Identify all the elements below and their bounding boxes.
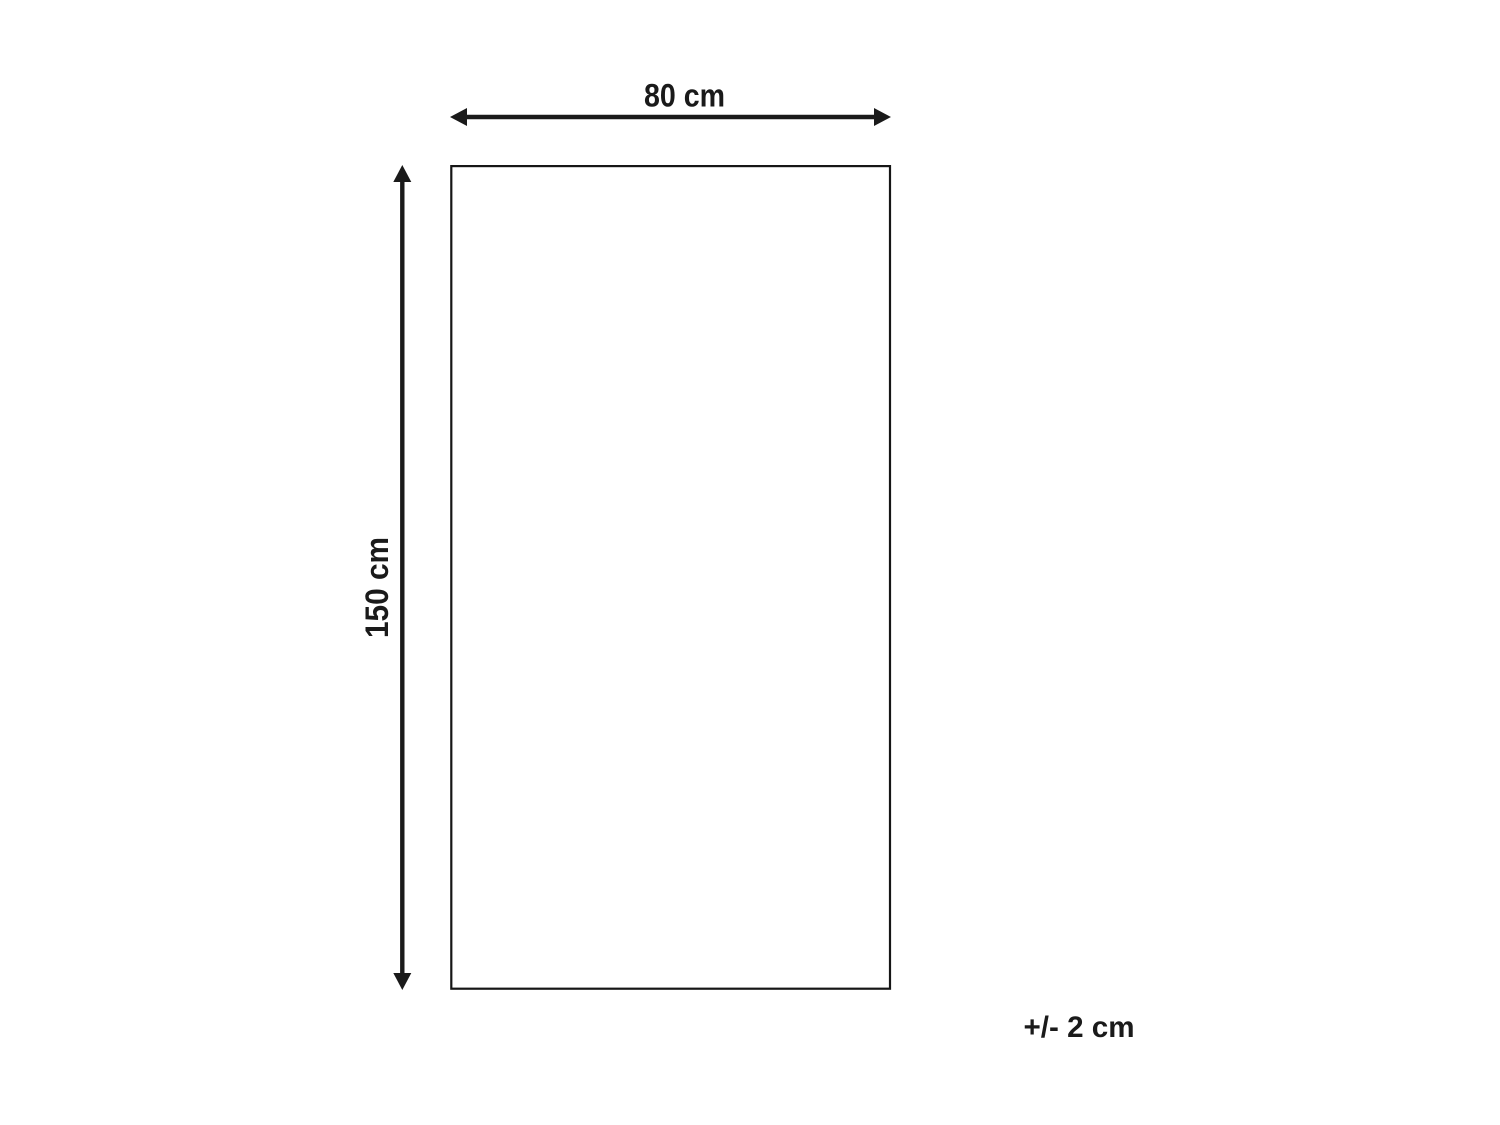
svg-text:+/- 2 cm: +/- 2 cm	[1024, 1011, 1135, 1044]
svg-text:150 cm: 150 cm	[359, 537, 395, 638]
svg-text:80 cm: 80 cm	[644, 78, 725, 114]
